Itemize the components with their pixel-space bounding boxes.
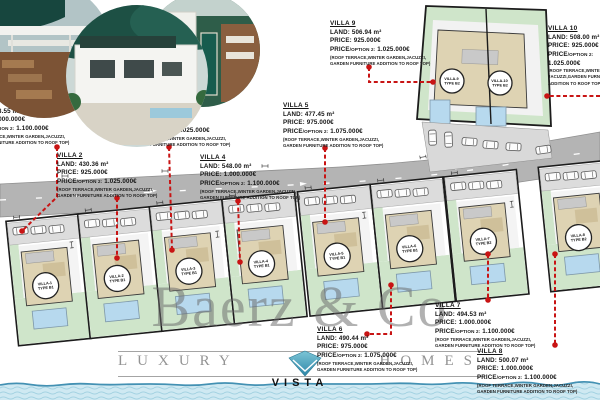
villa-8-plot bbox=[538, 160, 600, 292]
sea-water bbox=[0, 383, 600, 400]
svg-text:VILLA-8 TYPE B2: VILLA-8 TYPE B2 bbox=[570, 233, 587, 243]
svg-text:VILLA-2 TYPE B1: VILLA-2 TYPE B1 bbox=[109, 274, 126, 284]
roof-access bbox=[462, 49, 498, 64]
svg-text:VILLA-6 TYPE B1: VILLA-6 TYPE B1 bbox=[402, 244, 419, 254]
road-dim-tick bbox=[62, 174, 68, 178]
site-plan-page: VILLA-9 TYPE B2 VILLA-10 TYPE B2 bbox=[0, 0, 600, 400]
svg-text:VILLA-5 TYPE B1: VILLA-5 TYPE B1 bbox=[329, 251, 346, 261]
road-dim-tick bbox=[420, 155, 426, 159]
svg-text:VILLA-3 TYPE B1: VILLA-3 TYPE B1 bbox=[181, 266, 198, 276]
villa-9-10-building bbox=[434, 30, 527, 108]
villa-10-label: VILLA-10 TYPE B2 bbox=[488, 71, 512, 95]
svg-text:VILLA-10 TYPE B2: VILLA-10 TYPE B2 bbox=[491, 79, 509, 87]
svg-text:VILLA-9 TYPE B2: VILLA-9 TYPE B2 bbox=[444, 77, 460, 85]
svg-text:VILLA-4 TYPE B1: VILLA-4 TYPE B1 bbox=[253, 259, 270, 269]
svg-text:VILLA-1 TYPE B1: VILLA-1 TYPE B1 bbox=[37, 281, 54, 291]
villa-9-label: VILLA-9 TYPE B2 bbox=[440, 69, 464, 93]
svg-text:VILLA-7 TYPE B2: VILLA-7 TYPE B2 bbox=[475, 236, 492, 246]
villa-9-10-block: VILLA-9 TYPE B2 VILLA-10 TYPE B2 bbox=[417, 6, 552, 172]
villa-photos bbox=[0, 0, 280, 170]
pool bbox=[430, 100, 450, 124]
